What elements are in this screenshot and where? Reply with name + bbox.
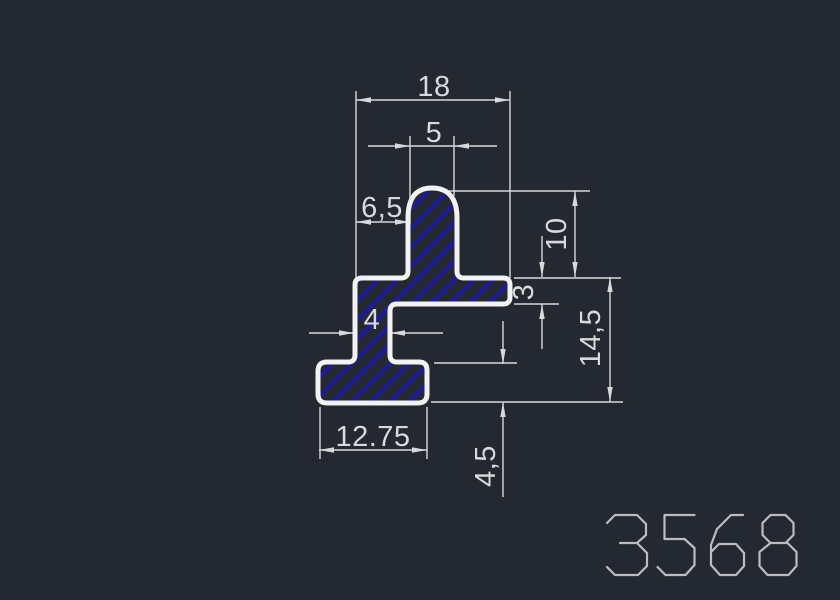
dim-foot-height: 4,5: [470, 445, 502, 487]
cad-canvas: 18 5 6,5 4 12.75 10 3 14,5 4,5: [0, 0, 840, 600]
dim-foot-width: 12.75: [335, 421, 410, 453]
dim-stem-height: 10: [541, 217, 573, 250]
dim-flange-thickness: 3: [508, 284, 540, 301]
dim-profile-height: 14,5: [575, 309, 607, 367]
dim-overall-width: 18: [417, 71, 450, 103]
dim-top-stem-width: 5: [426, 117, 443, 149]
dim-left-arm-width: 6,5: [361, 192, 403, 224]
dim-web-width: 4: [364, 304, 381, 336]
